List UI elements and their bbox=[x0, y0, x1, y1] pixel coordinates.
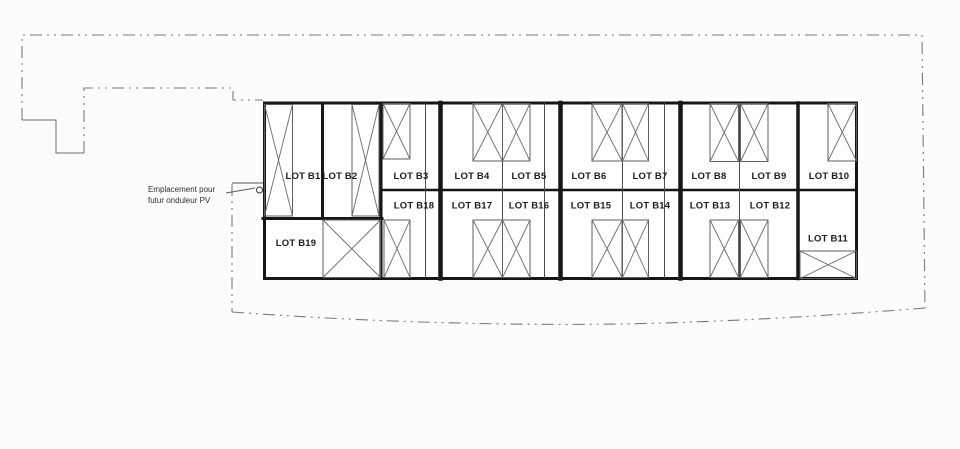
lot-label-b11: LOT B11 bbox=[808, 234, 848, 245]
site-plan-drawing: Emplacement pour futur onduleur PV bbox=[0, 0, 960, 449]
lot-label-b14: LOT B14 bbox=[630, 201, 671, 212]
lot-label-b4: LOT B4 bbox=[455, 171, 490, 182]
lot-label-b18: LOT B18 bbox=[394, 201, 434, 212]
lot-label-b12: LOT B12 bbox=[750, 201, 790, 212]
lot-label-b8: LOT B8 bbox=[692, 171, 727, 182]
lot-label-b13: LOT B13 bbox=[690, 201, 730, 212]
lot-label-b1: LOT B1 bbox=[286, 171, 321, 182]
lot-label-b3: LOT B3 bbox=[394, 171, 429, 182]
leader-line bbox=[226, 188, 255, 193]
lot-label-b19: LOT B19 bbox=[276, 238, 316, 249]
pv-annotation-line1: Emplacement pour bbox=[148, 185, 215, 194]
lot-label-b5: LOT B5 bbox=[512, 171, 547, 182]
building: LOT B1 LOT B2 LOT B3 LOT B4 LOT B5 LOT B… bbox=[263, 103, 857, 279]
lot-label-b10: LOT B10 bbox=[809, 171, 849, 182]
lot-label-b17: LOT B17 bbox=[452, 201, 492, 212]
pv-annotation-line2: futur onduleur PV bbox=[148, 196, 211, 205]
pv-annotation: Emplacement pour futur onduleur PV bbox=[148, 183, 264, 205]
lot-label-b15: LOT B15 bbox=[571, 201, 612, 212]
lot-label-b7: LOT B7 bbox=[633, 171, 668, 182]
lot-label-b16: LOT B16 bbox=[509, 201, 549, 212]
lot-label-b6: LOT B6 bbox=[572, 171, 607, 182]
lot-label-b9: LOT B9 bbox=[752, 171, 787, 182]
pv-location-marker bbox=[257, 187, 263, 193]
lot-label-b2: LOT B2 bbox=[323, 171, 358, 182]
site-plan: Emplacement pour futur onduleur PV bbox=[0, 0, 960, 449]
